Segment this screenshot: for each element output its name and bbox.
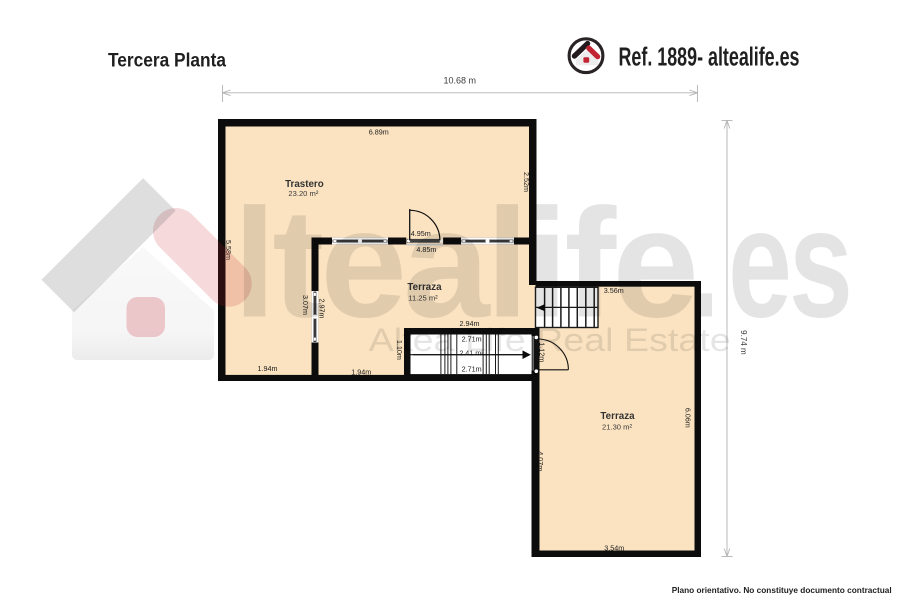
svg-text:6.89m: 6.89m xyxy=(369,128,389,137)
svg-text:6.06m: 6.06m xyxy=(683,408,692,428)
svg-text:es: es xyxy=(728,177,850,350)
svg-text:2.71m: 2.71m xyxy=(462,365,482,374)
svg-text:1.94m: 1.94m xyxy=(351,368,371,377)
svg-text:21.30 m²: 21.30 m² xyxy=(602,422,632,431)
svg-text:Ref. 1889- altealife.es: Ref. 1889- altealife.es xyxy=(619,44,800,72)
svg-text:4.07m: 4.07m xyxy=(536,451,545,471)
svg-text:Plano orientativo. No constitu: Plano orientativo. No constituye documen… xyxy=(672,585,892,595)
svg-text:10.68 m: 10.68 m xyxy=(444,76,477,86)
svg-text:Tercera Planta: Tercera Planta xyxy=(108,50,226,72)
svg-text:Terraza: Terraza xyxy=(600,411,635,422)
svg-text:3.54m: 3.54m xyxy=(604,543,624,552)
svg-text:Altea Life Real Estate: Altea Life Real Estate xyxy=(369,322,731,358)
svg-text:1.94m: 1.94m xyxy=(258,364,278,373)
